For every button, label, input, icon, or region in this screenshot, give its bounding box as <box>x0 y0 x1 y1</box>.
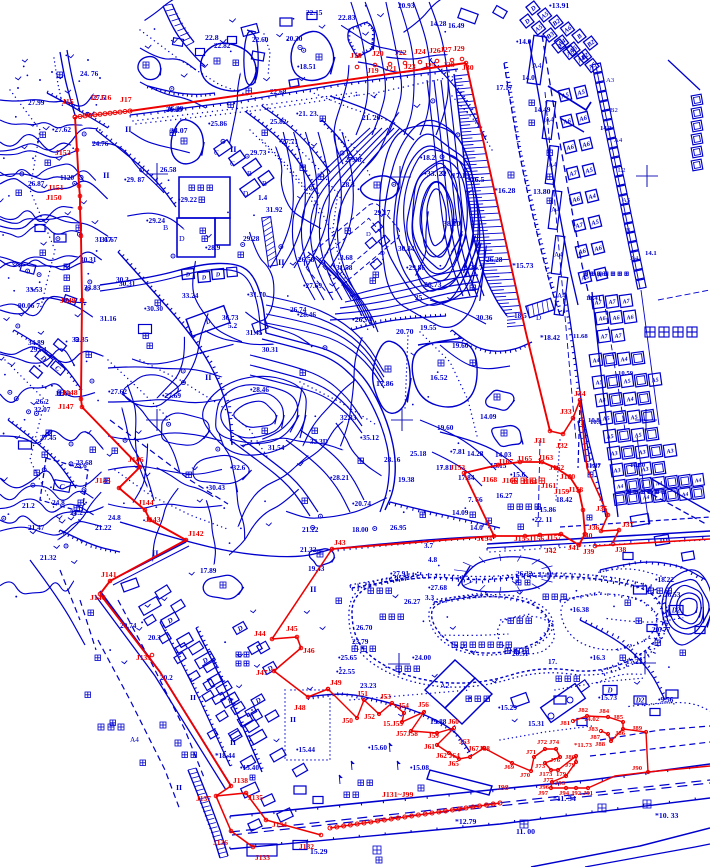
svg-text:A5: A5 <box>605 434 614 441</box>
svg-text:14.02: 14.02 <box>584 716 600 723</box>
svg-text:J165: J165 <box>517 454 532 463</box>
svg-text:*12.79: *12.79 <box>455 817 477 826</box>
svg-text:•25.65: •25.65 <box>338 653 357 662</box>
svg-text:34.89: 34.89 <box>28 338 45 347</box>
svg-text:J79: J79 <box>565 762 576 769</box>
svg-text:J141: J141 <box>101 570 117 579</box>
svg-text:•18.22: •18.22 <box>655 575 674 584</box>
svg-text:•18.51: •18.51 <box>297 62 316 71</box>
svg-text:J162: J162 <box>549 463 564 472</box>
svg-text:J89: J89 <box>632 725 643 732</box>
svg-text:26.70: 26.70 <box>356 623 373 632</box>
svg-text:•27.62: •27.62 <box>108 387 127 396</box>
svg-text:33.3D: 33.3D <box>310 437 328 446</box>
svg-text:30.84: 30.84 <box>398 244 415 253</box>
svg-text:19.38: 19.38 <box>398 475 415 484</box>
svg-text:31.54: 31.54 <box>268 443 285 452</box>
svg-text:14.28: 14.28 <box>467 449 484 458</box>
svg-text:A4: A4 <box>545 115 554 124</box>
svg-text:J15: J15 <box>62 97 74 106</box>
svg-text:•20.74: •20.74 <box>352 499 371 508</box>
svg-text:II: II <box>125 125 132 134</box>
svg-text:30.31: 30.31 <box>119 279 136 288</box>
svg-text:25.82: 25.82 <box>270 117 287 126</box>
svg-text:D: D <box>380 250 385 257</box>
svg-text:30.31: 30.31 <box>80 255 97 264</box>
svg-text:22.83: 22.83 <box>338 13 356 22</box>
svg-text:J56: J56 <box>418 700 429 709</box>
svg-text:J81: J81 <box>560 720 570 727</box>
svg-text:D: D <box>243 189 248 198</box>
svg-text:•18.2: •18.2 <box>420 153 436 162</box>
svg-text:J38: J38 <box>615 545 627 554</box>
svg-text:J47: J47 <box>256 668 268 677</box>
svg-text:A4: A4 <box>548 160 557 169</box>
svg-text:J22: J22 <box>395 48 407 57</box>
svg-text:14.09: 14.09 <box>452 508 469 517</box>
svg-text:*11.73: *11.73 <box>574 742 593 749</box>
svg-text:3.68: 3.68 <box>340 253 353 262</box>
svg-text:33.7: 33.7 <box>470 263 483 272</box>
svg-text:14.09: 14.09 <box>480 412 497 421</box>
svg-text:179: 179 <box>556 771 567 778</box>
svg-text:A6: A6 <box>597 316 606 323</box>
svg-text:22.8: 22.8 <box>205 33 219 42</box>
svg-text:J23: J23 <box>404 62 416 71</box>
svg-text:21.47: 21.47 <box>28 523 45 532</box>
svg-text:J80: J80 <box>565 754 576 761</box>
svg-text:A6: A6 <box>625 315 634 322</box>
svg-text:•21. 23.: •21. 23. <box>296 109 319 118</box>
svg-text:•27.69: •27.69 <box>303 281 322 290</box>
svg-text:32.33: 32.33 <box>340 413 357 422</box>
svg-text:L2: L2 <box>618 167 625 174</box>
svg-text:1120: 1120 <box>60 173 75 182</box>
svg-text:14.0: 14.0 <box>470 523 483 532</box>
svg-text:•15.44: •15.44 <box>296 745 315 754</box>
svg-text:21.32: 21.32 <box>40 553 57 562</box>
svg-text:•27.91: •27.91 <box>390 569 409 578</box>
svg-text:II: II <box>103 171 110 180</box>
svg-text:4.8: 4.8 <box>428 555 437 564</box>
svg-text:II: II <box>190 693 196 702</box>
svg-text:•29. 87: •29. 87 <box>124 175 145 184</box>
svg-text:31.58: 31.58 <box>336 263 353 272</box>
svg-text:A2: A2 <box>440 681 450 690</box>
svg-text:13.80: 13.80 <box>533 187 551 196</box>
svg-text:31.67: 31.67 <box>101 235 118 244</box>
svg-text:10.8: 10.8 <box>590 419 602 426</box>
svg-text:23.68: 23.68 <box>76 458 93 467</box>
svg-text:19.88: 19.88 <box>430 717 447 726</box>
svg-text:A3: A3 <box>665 448 674 455</box>
svg-text:J69: J69 <box>504 764 515 771</box>
svg-text:A4: A4 <box>614 137 623 144</box>
svg-text:12 J16: 12 J16 <box>90 93 112 102</box>
svg-text:J19: J19 <box>367 66 379 75</box>
svg-text:21.22: 21.22 <box>95 523 112 532</box>
svg-text:J150: J150 <box>46 193 62 202</box>
svg-text:J153: J153 <box>450 463 465 472</box>
svg-text:J137: J137 <box>196 794 211 803</box>
svg-text:•28.9: •28.9 <box>205 243 221 252</box>
svg-text:•28.21: •28.21 <box>330 473 349 482</box>
svg-text:J163: J163 <box>538 453 553 462</box>
svg-text:10.60: 10.60 <box>630 462 646 469</box>
svg-text:25.18: 25.18 <box>410 449 427 458</box>
svg-text:•27.62: •27.62 <box>52 125 71 134</box>
svg-text:A4: A4 <box>130 735 139 744</box>
svg-text:21.32: 21.32 <box>300 545 317 554</box>
svg-text:D2: D2 <box>635 697 645 705</box>
svg-text:J144: J144 <box>138 498 154 507</box>
svg-text:•29.24: •29.24 <box>146 216 165 225</box>
svg-text:10.59: 10.59 <box>618 370 634 377</box>
svg-text:•31.70: •31.70 <box>247 290 266 299</box>
svg-text:A4: A4 <box>625 397 634 404</box>
svg-text:•15.40: •15.40 <box>240 763 259 772</box>
svg-text:15.31: 15.31 <box>528 719 545 728</box>
svg-text:J45: J45 <box>286 624 298 633</box>
svg-text:J43: J43 <box>334 538 346 547</box>
svg-text:24. 76: 24. 76 <box>80 69 99 78</box>
svg-text:J67J68: J67J68 <box>468 744 490 753</box>
svg-text:J90: J90 <box>632 765 643 772</box>
svg-text:26.32: 26.32 <box>516 569 533 578</box>
svg-text:25: 25 <box>415 293 423 302</box>
svg-text:J61: J61 <box>424 742 435 751</box>
svg-text:A5: A5 <box>622 379 631 386</box>
svg-text:J25: J25 <box>424 61 436 70</box>
svg-text:•7.81: •7.81 <box>450 447 466 456</box>
svg-text:23.79: 23.79 <box>352 637 369 646</box>
svg-text:J73: J73 <box>535 763 546 770</box>
svg-text:•33. 22: •33. 22 <box>424 169 446 178</box>
svg-text:J77: J77 <box>543 777 554 784</box>
svg-text:28.16: 28.16 <box>384 455 401 464</box>
svg-text:•32.6: •32.6 <box>230 463 246 472</box>
svg-text:J145: J145 <box>95 476 111 485</box>
svg-text:A5: A5 <box>629 415 638 422</box>
svg-text:J157: J157 <box>546 533 561 542</box>
svg-text:J139: J139 <box>136 653 151 662</box>
svg-text:20.70: 20.70 <box>396 327 414 336</box>
svg-text:J88: J88 <box>595 741 606 748</box>
svg-text:J93: J93 <box>555 780 566 787</box>
svg-text:J17: J17 <box>120 95 132 104</box>
svg-text:31.45: 31.45 <box>246 328 263 337</box>
svg-text:13.41: 13.41 <box>586 295 601 302</box>
svg-text:J31: J31 <box>534 436 546 445</box>
svg-text:30.31: 30.31 <box>262 345 279 354</box>
svg-text:J74: J74 <box>549 739 560 746</box>
svg-text:II: II <box>278 258 285 267</box>
svg-text:J49: J49 <box>330 678 342 687</box>
svg-text:•25.86: •25.86 <box>208 119 227 128</box>
svg-text:J27: J27 <box>440 45 452 54</box>
svg-text:•27.68: •27.68 <box>428 583 447 592</box>
svg-text:16.52: 16.52 <box>430 373 448 382</box>
svg-text:27.45: 27.45 <box>40 433 57 442</box>
svg-text:J50: J50 <box>342 716 353 725</box>
svg-text:J131~J99: J131~J99 <box>382 790 413 799</box>
svg-text:20.30: 20.30 <box>286 34 303 43</box>
svg-text:J148: J148 <box>62 388 78 397</box>
svg-text:•27.69: •27.69 <box>162 391 181 400</box>
svg-text:21.2: 21.2 <box>22 501 35 510</box>
svg-text:J29: J29 <box>453 44 465 53</box>
svg-text:26.74: 26.74 <box>290 305 307 314</box>
svg-text:J154: J154 <box>477 534 492 543</box>
svg-text:11.27: 11.27 <box>586 463 601 470</box>
svg-text:19.60: 19.60 <box>437 423 454 432</box>
svg-text:J57J58: J57J58 <box>396 729 418 738</box>
svg-text:•24.00: •24.00 <box>412 653 431 662</box>
svg-text:J155: J155 <box>514 534 529 543</box>
svg-text:II: II <box>205 373 212 382</box>
svg-text:31.92: 31.92 <box>266 205 283 214</box>
svg-text:J51: J51 <box>357 689 368 698</box>
svg-text:14.49: 14.49 <box>534 105 551 114</box>
svg-text:•29.86: •29.86 <box>406 263 425 272</box>
svg-text:J152: J152 <box>55 148 71 157</box>
svg-text:90.06 7: 90.06 7 <box>18 301 40 310</box>
svg-text:J20: J20 <box>372 49 384 58</box>
svg-text:A4: A4 <box>694 478 702 485</box>
svg-text:26.28: 26.28 <box>486 255 503 264</box>
svg-text:J71: J71 <box>526 749 536 756</box>
svg-text:17.: 17. <box>548 657 557 666</box>
svg-text:J48: J48 <box>294 703 306 712</box>
svg-text:*16.28: *16.28 <box>494 186 516 195</box>
svg-text:•29.22: •29.22 <box>178 195 197 204</box>
svg-text:29.28: 29.28 <box>243 234 260 243</box>
svg-text:A6: A6 <box>611 315 620 322</box>
svg-text:J133: J133 <box>255 853 270 862</box>
svg-text:30.36: 30.36 <box>476 313 493 322</box>
svg-text:20. 77: 20. 77 <box>652 625 671 634</box>
svg-text:II: II <box>310 585 317 594</box>
svg-text:A3: A3 <box>606 77 615 84</box>
svg-text:21.22: 21.22 <box>302 525 319 534</box>
svg-text:24.76: 24.76 <box>92 139 109 148</box>
svg-text:•15.08: •15.08 <box>410 763 429 772</box>
svg-text:17.13: 17.13 <box>452 171 470 180</box>
svg-text:J72: J72 <box>537 739 548 746</box>
svg-text:B: B <box>262 179 267 188</box>
svg-text:•13.91: •13.91 <box>549 1 569 10</box>
svg-text:II: II <box>290 715 296 724</box>
svg-text:J132: J132 <box>299 842 314 851</box>
svg-text:1.4: 1.4 <box>258 193 267 202</box>
svg-text:26.27: 26.27 <box>404 597 421 606</box>
svg-text:20.3: 20.3 <box>148 633 161 642</box>
svg-text:26.73: 26.73 <box>424 280 442 289</box>
svg-text:26.53: 26.53 <box>664 590 681 599</box>
svg-text:*18.42: *18.42 <box>540 333 560 342</box>
svg-text:11. 00: 11. 00 <box>516 827 535 836</box>
svg-text:19.60: 19.60 <box>452 341 469 350</box>
svg-text:J167: J167 <box>498 457 513 466</box>
svg-text:•30.43: •30.43 <box>206 483 225 492</box>
svg-text:J156: J156 <box>529 534 544 543</box>
svg-text:D: D <box>179 234 185 243</box>
svg-text:A4: A4 <box>616 484 624 491</box>
svg-text:J151: J151 <box>48 183 64 192</box>
svg-text:J87: J87 <box>590 734 601 741</box>
svg-text:J136: J136 <box>213 838 228 847</box>
svg-text:J83: J83 <box>588 726 599 733</box>
svg-text:II: II <box>176 783 182 792</box>
svg-text:J54: J54 <box>398 701 409 710</box>
svg-text:32.07: 32.07 <box>34 405 51 414</box>
svg-text:J42: J42 <box>545 546 557 555</box>
svg-text:J40: J40 <box>581 531 593 540</box>
svg-text:J149: J149 <box>60 296 76 305</box>
svg-text:B: B <box>247 169 252 178</box>
svg-text:J94: J94 <box>559 790 570 797</box>
svg-text:II: II <box>230 145 237 154</box>
svg-text:J53: J53 <box>380 692 391 701</box>
svg-text:A5: A5 <box>650 377 659 384</box>
svg-text:J147: J147 <box>58 402 74 411</box>
svg-text:J18: J18 <box>350 51 362 60</box>
svg-text:J92: J92 <box>571 790 582 797</box>
svg-text:J28: J28 <box>443 60 455 69</box>
svg-text:•22.55: •22.55 <box>336 667 355 676</box>
svg-text:17.89: 17.89 <box>200 566 217 575</box>
svg-text:14.1: 14.1 <box>645 250 657 257</box>
svg-text:26.95: 26.95 <box>390 523 407 532</box>
svg-text:J85: J85 <box>613 714 624 721</box>
svg-text:J142: J142 <box>188 529 204 538</box>
svg-text:*15.73: *15.73 <box>512 261 534 270</box>
svg-text:31.16: 31.16 <box>100 314 117 323</box>
svg-text:32.35: 32.35 <box>72 335 89 344</box>
svg-text:A5: A5 <box>633 433 642 440</box>
svg-text:•35.12: •35.12 <box>360 433 379 442</box>
svg-text:J143: J143 <box>145 515 161 524</box>
svg-text:J21: J21 <box>385 64 397 73</box>
svg-text:J37: J37 <box>622 520 634 529</box>
svg-text:18.42: 18.42 <box>556 495 573 504</box>
svg-text:J35: J35 <box>596 504 608 513</box>
svg-text:D2: D2 <box>671 607 681 615</box>
svg-text:J146: J146 <box>128 455 144 464</box>
svg-text:16.27: 16.27 <box>496 491 513 500</box>
svg-text:J86: J86 <box>615 730 626 737</box>
svg-text:A4: A4 <box>557 291 566 300</box>
svg-text:J65: J65 <box>448 759 459 768</box>
svg-text:J32: J32 <box>556 441 568 450</box>
svg-text:18.00: 18.00 <box>352 525 369 534</box>
svg-text:J97: J97 <box>538 790 549 797</box>
svg-text:*18.44: *18.44 <box>215 751 235 760</box>
svg-text:29.73: 29.73 <box>250 148 267 157</box>
svg-text:D: D <box>366 231 371 238</box>
svg-text:•16.38: •16.38 <box>570 605 589 614</box>
svg-text:26.58: 26.58 <box>160 165 177 174</box>
svg-text:II: II <box>230 738 236 747</box>
svg-text:J84: J84 <box>599 708 610 715</box>
svg-text:27.99: 27.99 <box>28 98 45 107</box>
svg-text:A3: A3 <box>612 468 621 475</box>
svg-text:J160: J160 <box>560 472 575 481</box>
svg-text:•28.46: •28.46 <box>250 385 269 394</box>
svg-text:J70: J70 <box>520 772 531 779</box>
svg-text:A4: A4 <box>619 357 628 364</box>
svg-text:A4: A4 <box>554 250 563 259</box>
svg-text:J168: J168 <box>482 475 497 484</box>
svg-text:11.68: 11.68 <box>573 333 588 340</box>
svg-text:A4: A4 <box>532 61 542 70</box>
svg-text:15.J55: 15.J55 <box>383 719 403 728</box>
svg-text:26.87: 26.87 <box>28 179 45 188</box>
svg-text:J91: J91 <box>583 790 593 797</box>
svg-text:J158: J158 <box>568 485 583 494</box>
svg-text:24.8: 24.8 <box>108 513 121 522</box>
svg-text:3.3: 3.3 <box>425 593 434 602</box>
svg-text:33.53: 33.53 <box>26 285 43 294</box>
svg-text:•16.3: •16.3 <box>590 653 606 662</box>
svg-text:J24: J24 <box>414 47 426 56</box>
svg-text:J60: J60 <box>448 717 459 726</box>
svg-text:24.8: 24.8 <box>52 498 65 507</box>
svg-text:33.24: 33.24 <box>182 291 199 300</box>
svg-text:J138: J138 <box>233 776 248 785</box>
svg-text:*10. 33: *10. 33 <box>655 811 678 820</box>
svg-text:•26.5: •26.5 <box>468 175 484 184</box>
svg-text:C: C <box>214 148 219 157</box>
svg-text:B2: B2 <box>610 107 618 114</box>
svg-text:J39: J39 <box>583 547 595 556</box>
svg-text:26.58: 26.58 <box>298 255 315 264</box>
svg-text:J59: J59 <box>428 731 439 740</box>
svg-text:5.2: 5.2 <box>228 321 237 330</box>
svg-text:16.49: 16.49 <box>448 21 465 30</box>
svg-text:•15.60: •15.60 <box>368 743 387 752</box>
svg-text:D: D <box>536 313 541 322</box>
svg-text:J76: J76 <box>550 757 561 764</box>
svg-text:J44: J44 <box>254 629 266 638</box>
svg-text:J34: J34 <box>574 389 586 398</box>
svg-text:J46: J46 <box>303 646 315 655</box>
svg-text:J82: J82 <box>578 707 589 714</box>
svg-text:C: C <box>230 159 235 168</box>
svg-text:•22. 11: •22. 11 <box>532 515 553 524</box>
svg-text:J52: J52 <box>364 712 375 721</box>
svg-text:14.3: 14.3 <box>600 125 612 132</box>
svg-text:J98: J98 <box>497 783 509 792</box>
svg-text:D: D <box>606 687 612 695</box>
svg-text:J33: J33 <box>560 407 572 416</box>
svg-text:J41: J41 <box>568 543 580 552</box>
svg-text:20.51: 20.51 <box>512 649 529 658</box>
